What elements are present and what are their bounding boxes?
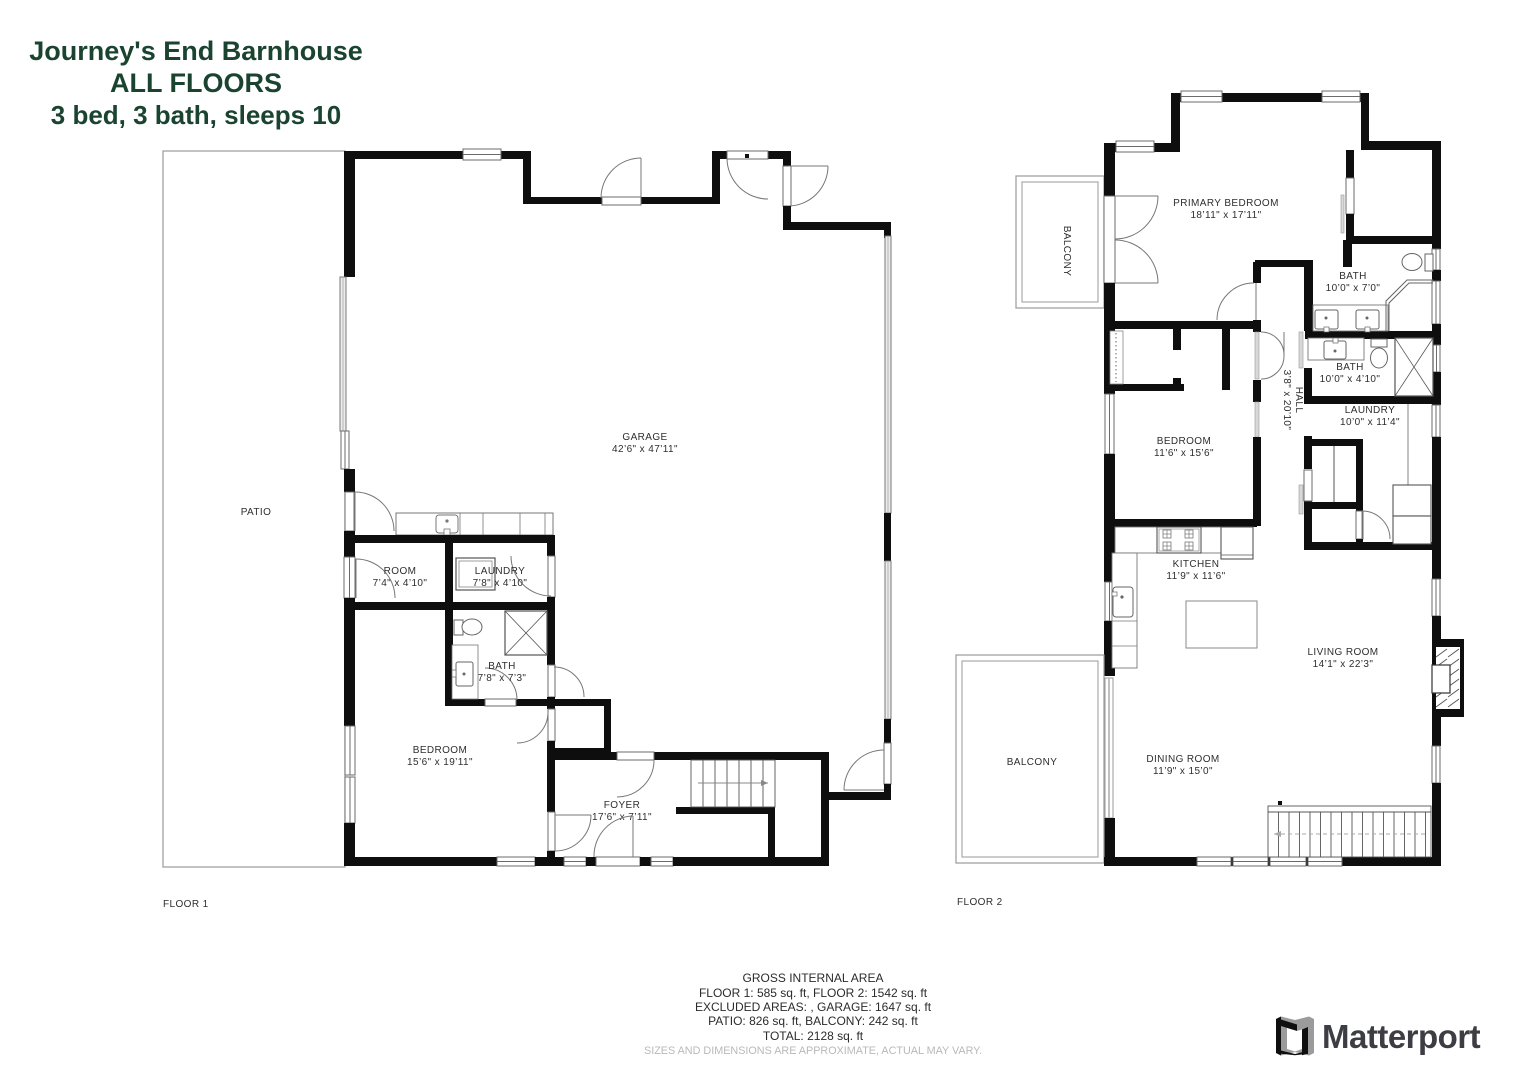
svg-text:SIZES AND DIMENSIONS ARE APPRO: SIZES AND DIMENSIONS ARE APPROXIMATE, AC… xyxy=(644,1045,982,1057)
svg-text:7’8" x 4’10": 7’8" x 4’10" xyxy=(473,578,528,589)
svg-text:BATH: BATH xyxy=(1336,362,1364,373)
svg-text:3 bed, 3 bath, sleeps 10: 3 bed, 3 bath, sleeps 10 xyxy=(51,100,341,130)
svg-text:PATIO: PATIO xyxy=(241,507,272,518)
svg-text:11’6" x 15’6": 11’6" x 15’6" xyxy=(1154,448,1214,459)
svg-text:14’1" x 22’3": 14’1" x 22’3" xyxy=(1313,659,1374,670)
svg-text:FOYER: FOYER xyxy=(604,800,640,811)
svg-text:PATIO: 826 sq. ft, BALCONY: 24: PATIO: 826 sq. ft, BALCONY: 242 sq. ft xyxy=(708,1014,918,1028)
svg-text:7’4" x 4’10": 7’4" x 4’10" xyxy=(373,578,428,589)
svg-text:11’9" x 15’0": 11’9" x 15’0" xyxy=(1153,766,1213,777)
svg-text:BALCONY: BALCONY xyxy=(1061,226,1072,277)
svg-text:DINING ROOM: DINING ROOM xyxy=(1146,754,1219,765)
svg-text:TOTAL: 2128 sq. ft: TOTAL: 2128 sq. ft xyxy=(763,1029,864,1043)
svg-text:ROOM: ROOM xyxy=(384,566,417,577)
svg-text:BATH: BATH xyxy=(488,661,516,672)
svg-text:LAUNDRY: LAUNDRY xyxy=(475,566,525,577)
svg-text:EXCLUDED AREAS: , GARAGE: 1647: EXCLUDED AREAS: , GARAGE: 1647 sq. ft xyxy=(695,1000,932,1014)
svg-text:HALL: HALL xyxy=(1293,387,1304,414)
svg-text:BEDROOM: BEDROOM xyxy=(413,745,467,756)
svg-text:Journey's End Barnhouse: Journey's End Barnhouse xyxy=(29,36,363,66)
svg-text:FLOOR 1: FLOOR 1 xyxy=(163,899,209,910)
svg-text:3’8" x 20’10": 3’8" x 20’10" xyxy=(1281,370,1292,431)
svg-text:Matterport: Matterport xyxy=(1322,1018,1481,1055)
svg-text:10’0" x 7’0": 10’0" x 7’0" xyxy=(1326,283,1381,294)
svg-text:BATH: BATH xyxy=(1339,271,1367,282)
svg-text:FLOOR 1: 585 sq. ft, FLOOR 2:: FLOOR 1: 585 sq. ft, FLOOR 2: 1542 sq. f… xyxy=(699,986,928,1000)
svg-text:BALCONY: BALCONY xyxy=(1007,757,1058,768)
svg-text:11’9" x 11’6": 11’9" x 11’6" xyxy=(1166,571,1225,582)
svg-text:18’11" x 17’11": 18’11" x 17’11" xyxy=(1190,210,1261,221)
svg-text:ALL FLOORS: ALL FLOORS xyxy=(110,68,282,98)
svg-text:10’0" x 11’4": 10’0" x 11’4" xyxy=(1340,417,1400,428)
svg-text:GARAGE: GARAGE xyxy=(622,432,667,443)
svg-text:FLOOR 2: FLOOR 2 xyxy=(957,897,1003,908)
svg-text:BEDROOM: BEDROOM xyxy=(1157,436,1211,447)
svg-text:GROSS INTERNAL AREA: GROSS INTERNAL AREA xyxy=(743,971,884,985)
svg-text:7’8" x 7’3": 7’8" x 7’3" xyxy=(478,673,527,684)
svg-text:42’6" x 47’11": 42’6" x 47’11" xyxy=(612,444,678,455)
svg-text:KITCHEN: KITCHEN xyxy=(1173,559,1220,570)
svg-text:LAUNDRY: LAUNDRY xyxy=(1345,405,1395,416)
svg-text:10’0" x 4’10": 10’0" x 4’10" xyxy=(1320,374,1381,385)
svg-text:15’6" x 19’11": 15’6" x 19’11" xyxy=(407,757,473,768)
svg-text:PRIMARY BEDROOM: PRIMARY BEDROOM xyxy=(1173,198,1279,209)
svg-text:LIVING ROOM: LIVING ROOM xyxy=(1307,647,1378,658)
